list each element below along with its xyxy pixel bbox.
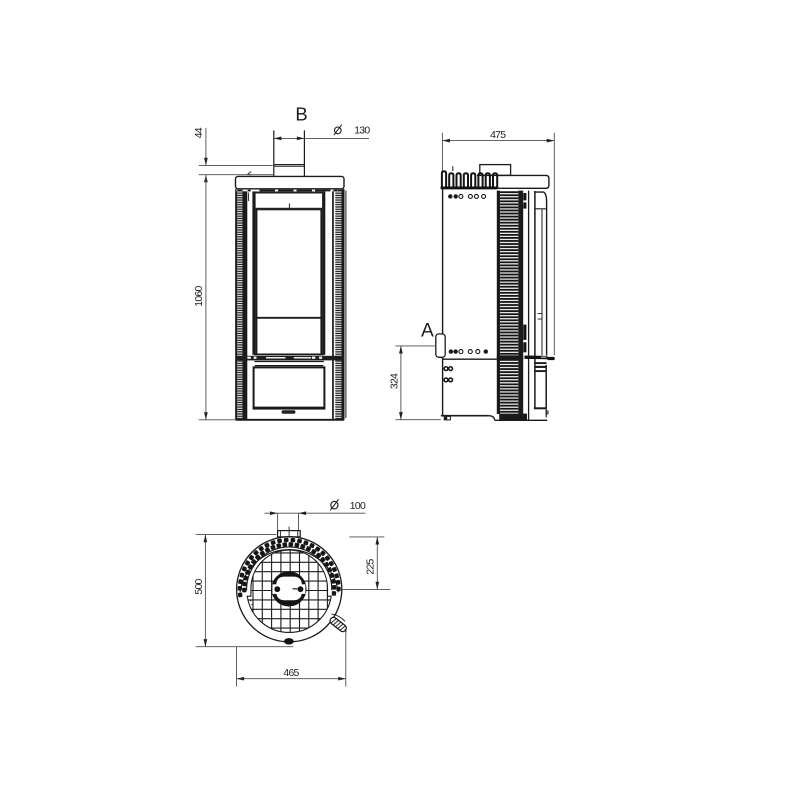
svg-text:475: 475	[490, 130, 506, 141]
svg-text:1060: 1060	[194, 286, 205, 307]
svg-text:A: A	[421, 321, 434, 342]
svg-text:B: B	[295, 104, 307, 125]
svg-text:44: 44	[194, 127, 205, 138]
svg-text:100: 100	[350, 501, 366, 512]
svg-text:130: 130	[354, 125, 370, 136]
svg-text:225: 225	[366, 558, 377, 574]
svg-text:465: 465	[283, 668, 299, 679]
svg-text:324: 324	[389, 373, 400, 389]
svg-text:500: 500	[194, 578, 205, 594]
